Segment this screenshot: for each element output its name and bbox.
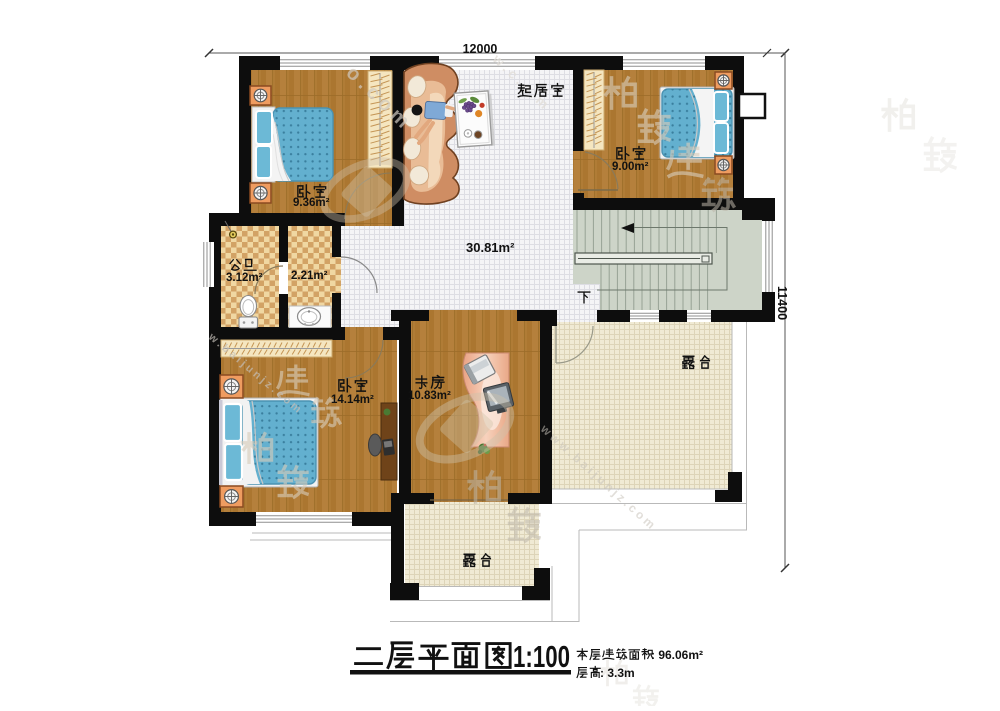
svg-text:11400: 11400 [775, 286, 789, 320]
svg-text:9.36m²: 9.36m² [293, 197, 330, 209]
svg-text:3.12m²: 3.12m² [226, 272, 263, 284]
svg-text:: 96.06m²: : 96.06m² [651, 648, 703, 662]
svg-text:: 3.3m: : 3.3m [600, 666, 635, 680]
svg-text:2.21m²: 2.21m² [291, 270, 328, 282]
svg-text:12000: 12000 [463, 42, 498, 56]
svg-text:14.14m²: 14.14m² [331, 394, 374, 406]
svg-text:10.83m²: 10.83m² [408, 390, 451, 402]
svg-text:9.00m²: 9.00m² [612, 161, 649, 173]
svg-text:1:100: 1:100 [513, 639, 570, 674]
svg-text:30.81m²: 30.81m² [466, 240, 515, 255]
